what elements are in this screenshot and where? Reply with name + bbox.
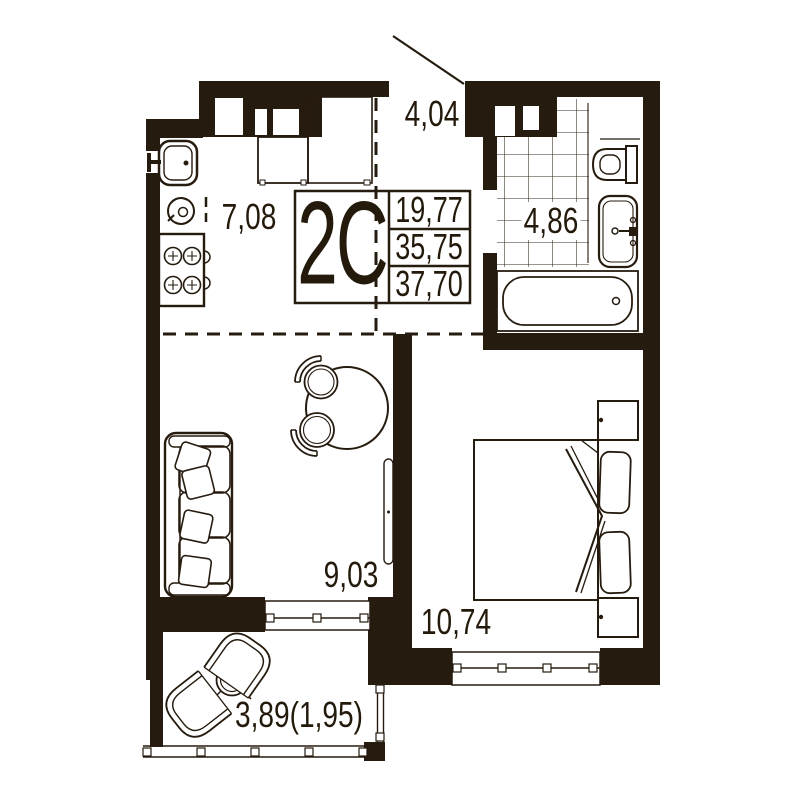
balcony-railing-right [376,685,384,742]
living-room-area-label: 9,03 [324,557,379,593]
balcony-chair-top [204,626,277,698]
kitchen-extractor-fan-icon [168,198,194,224]
nightstand-top [598,401,638,440]
kitchen-sink [159,141,197,185]
washbasin [599,196,637,267]
bed-pillows [599,451,631,593]
unit-total-area: 37,70 [395,266,463,302]
bedroom-window [452,652,600,685]
bedroom-area-label: 10,74 [421,604,491,640]
balcony-railing-bottom [143,746,385,757]
unit-type-label: 2C [297,184,387,302]
pocket-door-leaf [384,459,393,564]
kitchen-area-label: 7,08 [222,199,277,235]
balcony-area-label: 3,89(1,95) [235,697,363,733]
bed [474,440,598,600]
bathtub [497,271,638,331]
floor-plan-drawing [0,0,800,800]
entrance-door-swing [393,36,464,84]
dining-chair-top [295,356,338,399]
unit-living-area: 19,77 [395,192,463,228]
floor-plan: 4,04 7,08 4,86 9,03 10,74 3,89(1,95) 2C … [0,0,800,800]
balcony-window-door [265,601,370,630]
dining-chair-bottom [291,413,334,456]
nightstand-bottom [598,598,638,637]
bathroom-area-label: 4,86 [521,202,580,240]
kitchen-stove [159,234,210,306]
hallway-area-label: 4,04 [405,96,460,132]
unit-floor-area: 35,75 [395,229,463,265]
toilet [593,139,640,183]
